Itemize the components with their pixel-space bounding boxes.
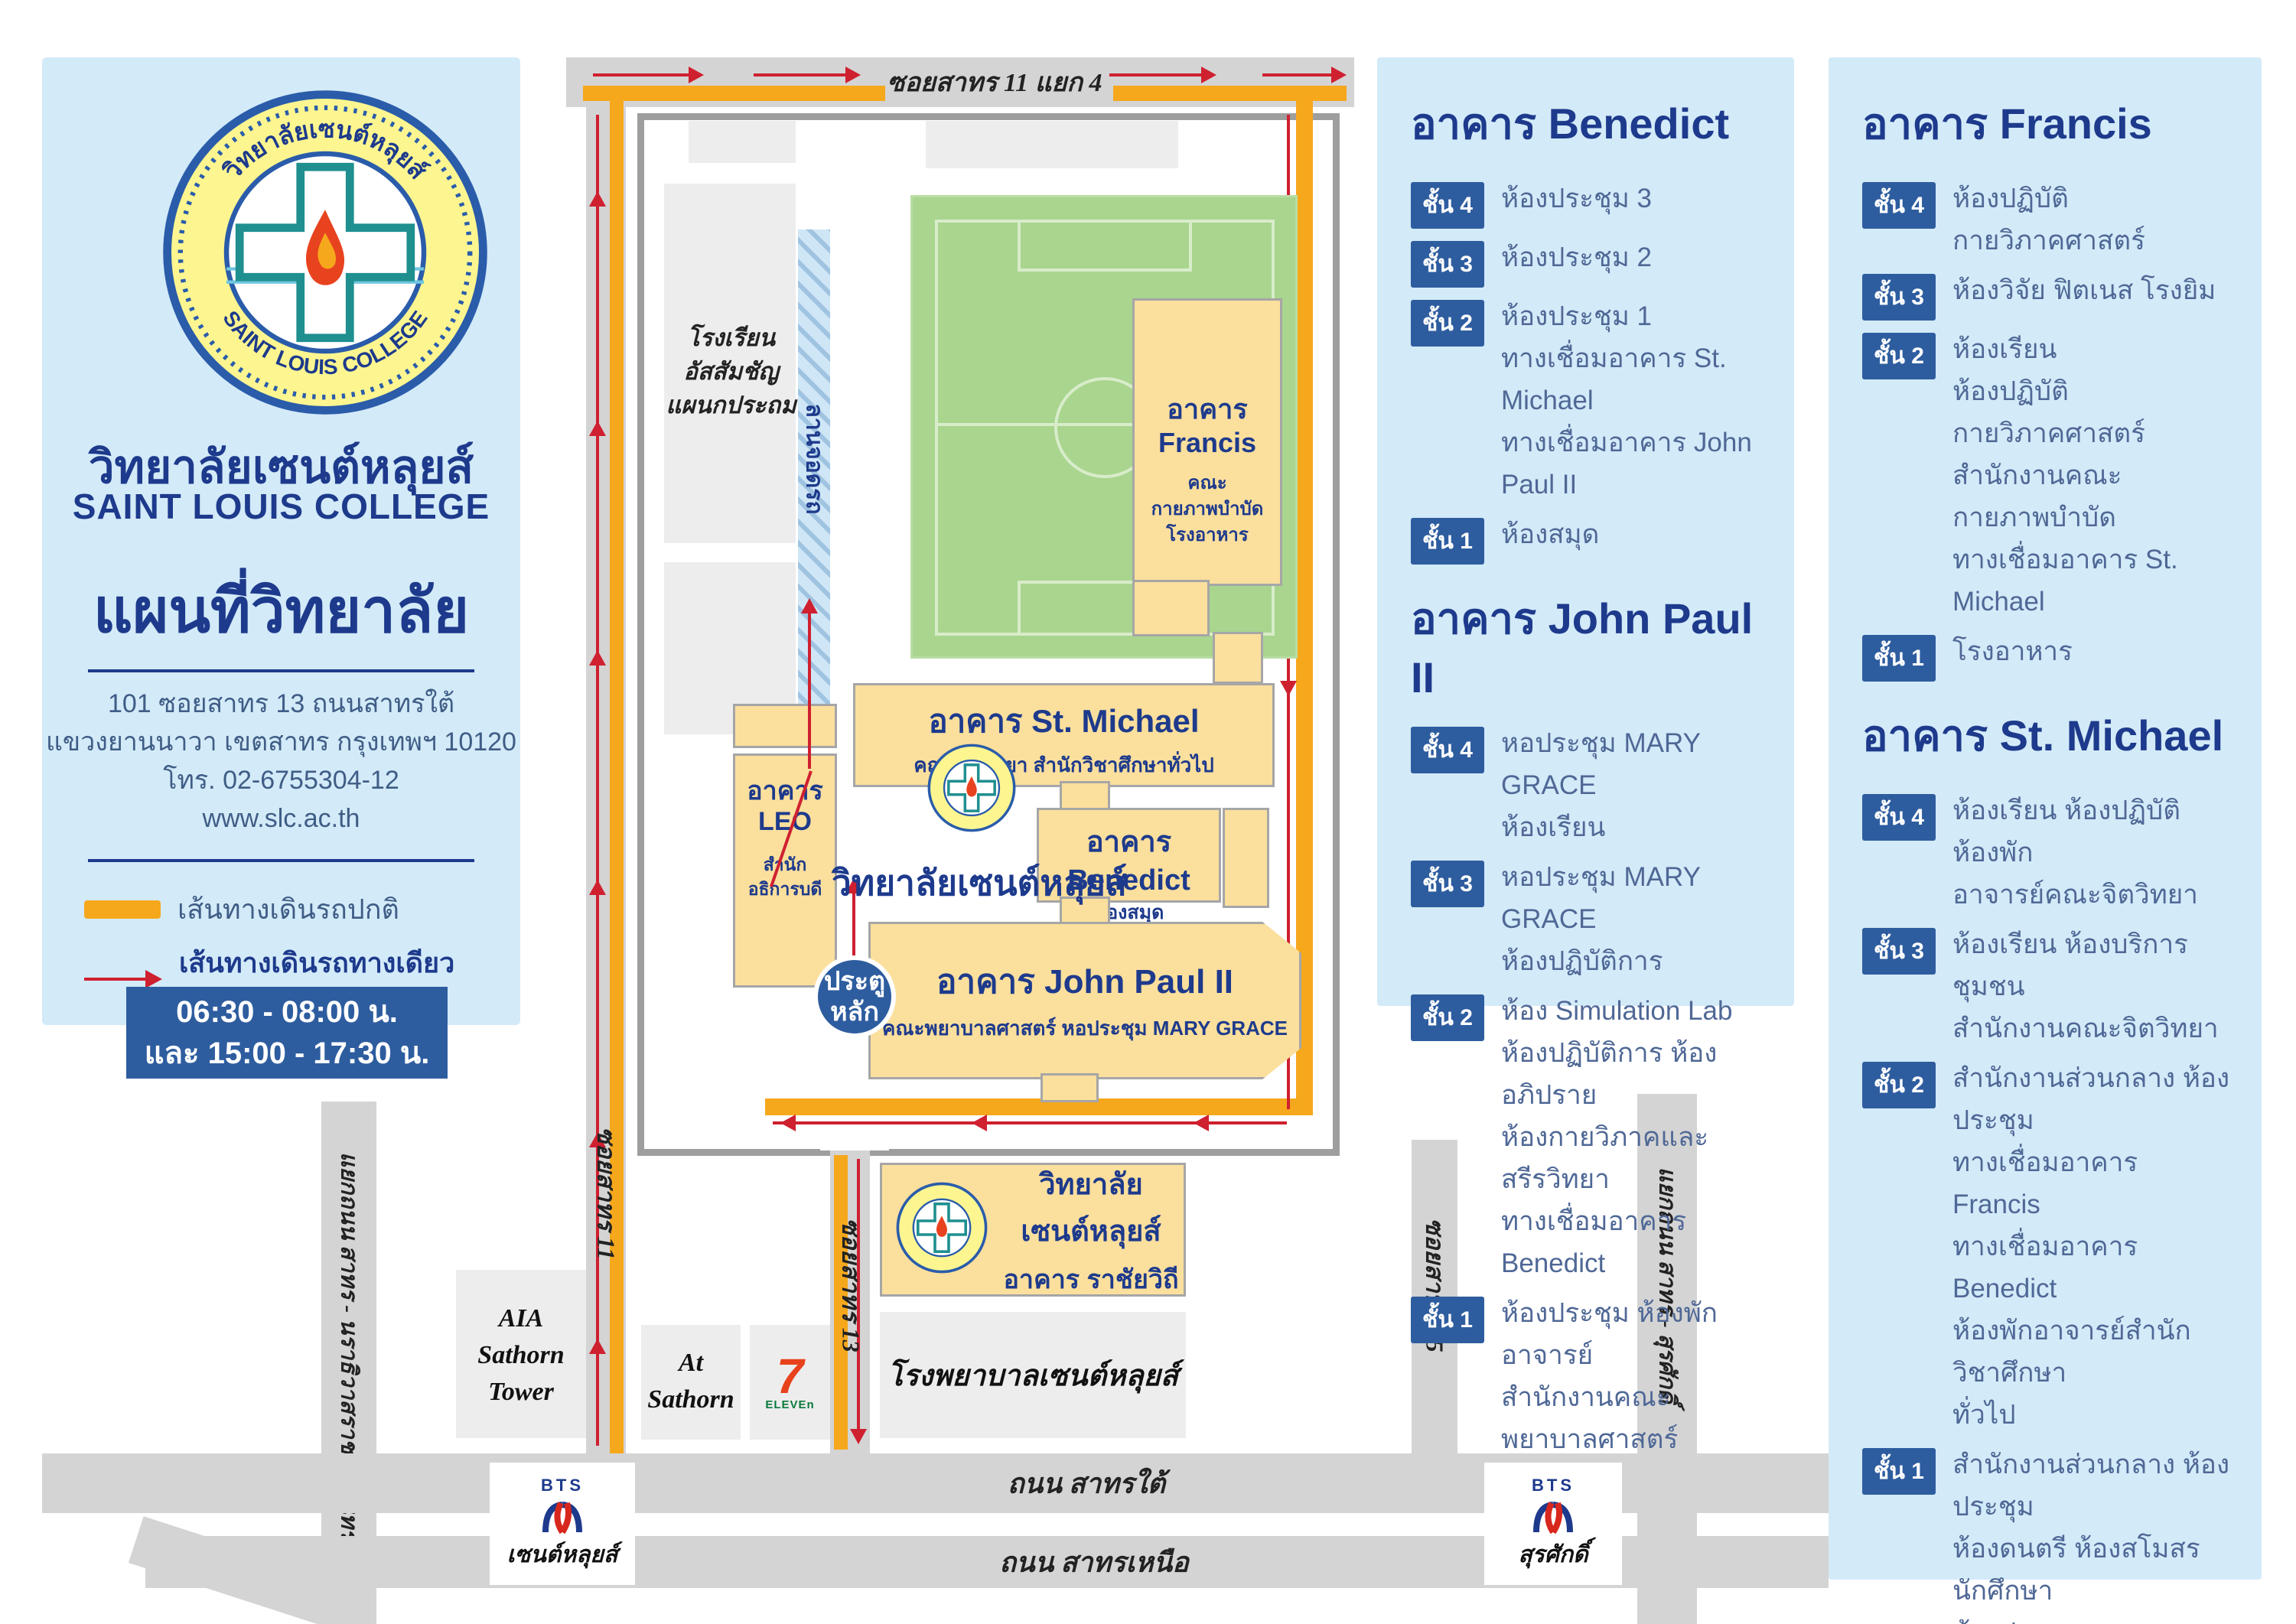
legend-normal-route: เส้นทางเดินรถปกติ <box>84 887 399 931</box>
road-label-sathorn-tai: ถนน สาทรใต้ <box>1008 1462 1165 1505</box>
one-way-arrow-up-icon <box>589 1339 606 1354</box>
floor-line: ห้องประชุม 2 <box>1501 236 1652 278</box>
directory-john-paul-floors: ชั้น 4หอประชุม MARY GRACEห้องเรียนชั้น 3… <box>1411 722 1764 1460</box>
floor-line: ห้องสมุด <box>1501 513 1599 555</box>
one-way-arrow-right-icon <box>1331 67 1347 83</box>
floor-line: หอประชุม MARY GRACE <box>1501 722 1764 806</box>
building-connector <box>1041 1073 1099 1102</box>
floor-row: ชั้น 1ห้องสมุด <box>1411 513 1764 565</box>
michael-label: อาคาร St. Michael <box>855 696 1272 747</box>
field-goal-box <box>1018 220 1192 272</box>
aia-label-line: AIA <box>456 1300 586 1337</box>
floor-line: ห้องประชุม ห้องพักอาจารย์ <box>1501 1292 1764 1376</box>
floor-line: ห้องประชุม 3 <box>1501 177 1652 220</box>
assumption-school-label: โรงเรียน อัสสัมชัญ แผนกประถม <box>656 321 806 422</box>
legend-normal-label: เส้นทางเดินรถปกติ <box>177 887 399 931</box>
school-label-line: อัสสัมชัญ <box>656 355 806 389</box>
floor-row: ชั้น 3ห้องวิจัย ฟิตเนส โรงยิม <box>1862 269 2231 321</box>
building-st-michael: อาคาร St. Michael คณะจิตวิทยา สำนักวิชาศ… <box>853 683 1275 787</box>
floor-badge: ชั้น 1 <box>1411 518 1484 565</box>
one-way-arrow-left-icon <box>972 1115 987 1131</box>
floor-badge: ชั้น 2 <box>1411 994 1484 1041</box>
francis-sub: โรงอาหาร <box>1135 522 1280 548</box>
floor-line: ทางเชื่อมอาคาร St. Michael <box>1952 539 2231 623</box>
one-way-arrow-right-icon <box>689 67 704 83</box>
main-gate-badge: ประตู หลัก <box>813 955 896 1038</box>
road-label-sathorn-nuea: ถนน สาทรเหนือ <box>999 1541 1189 1584</box>
building-block <box>1223 808 1269 908</box>
floor-badge: ชั้น 1 <box>1862 1448 1936 1495</box>
floor-line: สำนักงานส่วนกลาง ห้องประชุม <box>1952 1443 2231 1528</box>
directory-michael-floors: ชั้น 4ห้องเรียน ห้องปฏิบัติ ห้องพักอาจาร… <box>1862 789 2231 1624</box>
floor-line: ห้อง Simulation Lab <box>1501 990 1764 1032</box>
floor-row: ชั้น 3หอประชุม MARY GRACEห้องปฏิบัติการ <box>1411 856 1764 982</box>
floor-badge: ชั้น 3 <box>1862 274 1936 321</box>
floor-line: สำนักงานคณะกายภาพบำบัด <box>1952 454 2231 539</box>
francis-label: Francis <box>1135 426 1280 460</box>
floor-line: อาจารย์คณะจิตวิทยา <box>1952 874 2231 916</box>
floor-line: ห้องดนตรี ห้องสโมสรนักศึกษา <box>1952 1528 2231 1612</box>
michael-sub: คณะจิตวิทยา สำนักวิชาศึกษาทั่วไป <box>855 750 1272 781</box>
bts-logo-text: BTS <box>541 1476 584 1495</box>
floor-row: ชั้น 2ห้องเรียนห้องปฏิบัติกายวิภาคศาสตร์… <box>1862 328 2231 623</box>
gate-gap <box>820 1137 889 1150</box>
floor-line: ห้องปฏิบัติกายวิภาคศาสตร์ <box>1952 370 2231 454</box>
floor-row: ชั้น 1โรงอาหาร <box>1862 630 2231 682</box>
school-label-line: แผนกประถม <box>656 389 806 422</box>
saint-louis-hospital-block: โรงพยาบาลเซนต์หลุยส์ <box>880 1312 1186 1438</box>
floor-line: ห้องปฏิบัติกายวิภาคศาสตร์ <box>1952 177 2231 262</box>
address-line-1: 101 ซอยสาทร 13 ถนนสาทรใต้ <box>42 685 520 723</box>
one-way-arrow-up-icon <box>589 421 606 436</box>
floor-row: ชั้น 1ห้องประชุม ห้องพักอาจารย์สำนักงานค… <box>1411 1292 1764 1460</box>
floor-row: ชั้น 2สำนักงานส่วนกลาง ห้องประชุมทางเชื่… <box>1862 1057 2231 1436</box>
one-way-arrow-up-icon <box>589 650 606 666</box>
one-way-arrow-down-icon <box>850 1429 867 1444</box>
website-text: www.slc.ac.th <box>42 799 520 838</box>
bts-logo-icon <box>1529 1499 1578 1534</box>
building-john-paul: อาคาร John Paul II คณะพยาบาลศาสตร์ หอประ… <box>868 922 1301 1079</box>
college-seal-small-icon <box>896 1182 988 1277</box>
at-sathorn-label-line: Sathorn <box>641 1382 741 1418</box>
floor-line: ทางเชื่อมอาคาร St. Michael <box>1501 337 1764 421</box>
floor-line: ทางเชื่อมอาคาร John Paul II <box>1501 421 1764 506</box>
building-block <box>689 121 796 163</box>
rajavithi-sub: อาคาร ราชัยวิถี <box>998 1258 1184 1300</box>
college-name-eng: SAINT LOUIS COLLEGE <box>42 486 520 527</box>
seven-digit: 7 <box>765 1354 814 1398</box>
road-label-soi11: ซอยสาทร 11 <box>587 1127 626 1260</box>
bts-station-name: เซนต์หลุยส์ <box>507 1537 618 1573</box>
one-way-time-2: และ 15:00 - 17:30 น. <box>126 1033 448 1074</box>
floor-line: ห้องเรียน <box>1501 806 1764 848</box>
floor-line: ห้องเรียน <box>1952 328 2231 370</box>
gate-label-line: ประตู <box>824 966 885 997</box>
floor-badge: ชั้น 4 <box>1411 182 1484 229</box>
floor-row: ชั้น 4หอประชุม MARY GRACEห้องเรียน <box>1411 722 1764 848</box>
floor-badge: ชั้น 1 <box>1862 635 1936 682</box>
info-panel: วิทยาลัยเซนต์หลุยส์ SAINT LOUIS COLLEGE … <box>42 57 520 1025</box>
at-sathorn-label-line: At <box>641 1345 741 1382</box>
floor-badge: ชั้น 2 <box>1862 1062 1936 1108</box>
one-way-arrow-up-icon <box>589 880 606 895</box>
directory-title-michael: อาคาร St. Michael <box>1862 701 2231 770</box>
one-way-arrow-left-icon <box>1194 1115 1209 1131</box>
bts-saint-louis-station: BTS เซนต์หลุยส์ <box>490 1463 635 1585</box>
floor-line: ห้องประชุม 1 <box>1501 295 1764 337</box>
directory-title-francis: อาคาร Francis <box>1862 89 2231 158</box>
floor-badge: ชั้น 2 <box>1862 333 1936 379</box>
building-francis: อาคาร Francis คณะกายภาพบำบัด โรงอาหาร <box>1132 298 1282 586</box>
floor-line: สำนักงานคณะพยาบาลศาสตร์ <box>1501 1376 1764 1460</box>
one-way-times-box: 06:30 - 08:00 น. และ 15:00 - 17:30 น. <box>126 987 448 1079</box>
floor-badge: ชั้น 3 <box>1862 928 1936 975</box>
divider <box>88 669 474 672</box>
floor-line: ทางเชื่อมอาคาร Francis <box>1952 1141 2231 1225</box>
address-line-2: แขวงยานนาวา เขตสาทร กรุงเทพฯ 10120 <box>42 723 520 761</box>
hospital-label: โรงพยาบาลเซนต์หลุยส์ <box>887 1352 1178 1398</box>
francis-sub: คณะกายภาพบำบัด <box>1135 470 1280 522</box>
aia-label-line: Sathorn <box>456 1337 586 1374</box>
normal-route-swatch-icon <box>84 900 161 919</box>
floor-badge: ชั้น 2 <box>1411 300 1484 347</box>
rajavithi-label: วิทยาลัยเซนต์หลุยส์ <box>998 1160 1184 1254</box>
floor-row: ชั้น 3ห้องประชุม 2 <box>1411 236 1764 288</box>
college-center-label: วิทยาลัยเซนต์หลุยส์ <box>765 855 1194 911</box>
parking-label: ลานจอดรถ <box>796 403 832 514</box>
gate-label-line: หลัก <box>830 997 879 1027</box>
floor-line: ทั่วไป <box>1952 1394 2231 1436</box>
floor-line: โรงอาหาร <box>1952 630 2073 672</box>
floor-row: ชั้น 4ห้องปฏิบัติกายวิภาคศาสตร์ <box>1862 177 2231 262</box>
floor-line: สำนักงานส่วนกลาง ห้องประชุม <box>1952 1057 2231 1141</box>
floor-row: ชั้น 3ห้องเรียน ห้องบริการชุมชนสำนักงานค… <box>1862 923 2231 1050</box>
aia-sathorn-tower-block: AIA Sathorn Tower <box>456 1270 586 1438</box>
floor-line: ห้องปฏิบัติการ ห้องอภิปราย <box>1501 1032 1764 1116</box>
directory-title-john-paul: อาคาร John Paul II <box>1411 584 1764 702</box>
leo-label: อาคาร <box>735 776 835 806</box>
bts-logo-icon <box>538 1499 587 1534</box>
floor-line: ห้องเรียน ห้องปฏิบัติ ห้องพัก <box>1952 789 2231 874</box>
floor-row: ชั้น 4ห้องเรียน ห้องปฏิบัติ ห้องพักอาจาร… <box>1862 789 2231 916</box>
route-strip <box>765 1098 1313 1115</box>
floor-line: หอประชุม MARY GRACE <box>1501 856 1764 940</box>
map-title: แผนที่วิทยาลัย <box>42 562 520 659</box>
floor-line: ทางเชื่อมอาคาร Benedict <box>1952 1225 2231 1310</box>
college-seal-small-icon <box>927 744 1016 836</box>
floor-badge: ชั้น 3 <box>1411 241 1484 288</box>
one-way-arrow-down-icon <box>1280 681 1297 696</box>
bts-surasak-station: BTS สุรศักดิ์ <box>1484 1463 1622 1585</box>
directory-francis-floors: ชั้น 4ห้องปฏิบัติกายวิภาคศาสตร์ชั้น 3ห้อ… <box>1862 177 2231 682</box>
bts-logo-text: BTS <box>1532 1476 1575 1495</box>
seven-eleven-block: 7 ELEVEn <box>750 1325 830 1440</box>
john-paul-sub: คณะพยาบาลศาสตร์ หอประชุม MARY GRACE <box>871 1013 1299 1044</box>
leo-label: LEO <box>735 806 835 837</box>
campus-map-poster: วิทยาลัยเซนต์หลุยส์ SAINT LOUIS COLLEGE … <box>0 0 2296 1624</box>
floor-line: ห้องวิจัย ฟิตเนส โรงยิม <box>1952 269 2216 311</box>
floor-row: ชั้น 1สำนักงานส่วนกลาง ห้องประชุมห้องดนต… <box>1862 1443 2231 1624</box>
one-way-arrow-right-icon <box>1201 67 1216 83</box>
floor-line: ห้องปฐมพยาบาล <box>1952 1612 2231 1624</box>
floor-line: ห้องปฏิบัติการ <box>1501 940 1764 982</box>
floor-line: ห้องกายวิภาคและสรีรวิทยา <box>1501 1116 1764 1200</box>
one-way-arrow-up-icon <box>801 598 818 613</box>
floor-badge: ชั้น 3 <box>1411 861 1484 907</box>
floor-line: สำนักงานคณะจิตวิทยา <box>1952 1007 2231 1050</box>
one-way-arrow-right-icon <box>845 67 861 83</box>
seven-word: ELEVEn <box>765 1398 814 1411</box>
college-seal-icon: วิทยาลัยเซนต์หลุยส์ SAINT LOUIS COLLEGE <box>161 88 490 421</box>
floor-badge: ชั้น 4 <box>1862 182 1936 229</box>
floor-row: ชั้น 4ห้องประชุม 3 <box>1411 177 1764 229</box>
building-rajavithi: วิทยาลัยเซนต์หลุยส์ อาคาร ราชัยวิถี <box>880 1163 1186 1297</box>
at-sathorn-block: At Sathorn <box>641 1325 741 1440</box>
floor-row: ชั้น 2ห้อง Simulation Labห้องปฏิบัติการ … <box>1411 990 1764 1284</box>
road-label-soi11-yaek4: ซอยสาทร 11 แยก 4 <box>887 61 1102 103</box>
route-strip <box>583 86 885 101</box>
one-way-arrow-left-icon <box>780 1115 796 1131</box>
directory-panel-1: อาคาร Benedict ชั้น 4ห้องประชุม 3ชั้น 3ห… <box>1377 57 1794 1006</box>
floor-line: ห้องพักอาจารย์สำนักวิชาศึกษา <box>1952 1310 2231 1394</box>
floor-badge: ชั้น 4 <box>1411 727 1484 773</box>
road-label-soi13: ซอยสาทร 13 <box>832 1218 871 1352</box>
one-way-time-1: 06:30 - 08:00 น. <box>126 991 448 1033</box>
one-way-arrow-icon <box>84 970 162 988</box>
directory-title-benedict: อาคาร Benedict <box>1411 89 1764 158</box>
directory-benedict-floors: ชั้น 4ห้องประชุม 3ชั้น 3ห้องประชุม 2ชั้น… <box>1411 177 1764 565</box>
floor-line: ทางเชื่อมอาคาร Benedict <box>1501 1200 1764 1284</box>
floor-badge: ชั้น 1 <box>1411 1297 1484 1343</box>
floor-row: ชั้น 2ห้องประชุม 1ทางเชื่อมอาคาร St. Mic… <box>1411 295 1764 506</box>
school-label-line: โรงเรียน <box>656 321 806 355</box>
divider <box>88 859 474 862</box>
directory-panel-2: อาคาร Francis ชั้น 4ห้องปฏิบัติกายวิภาคศ… <box>1829 57 2262 1580</box>
building-block <box>733 704 837 748</box>
building-francis-step <box>1132 580 1210 636</box>
seven-eleven-logo-icon: 7 ELEVEn <box>765 1354 814 1411</box>
bts-station-name: สุรศักดิ์ <box>1518 1537 1588 1573</box>
one-way-arrow-up-icon <box>589 191 606 207</box>
floor-badge: ชั้น 4 <box>1862 794 1936 841</box>
building-connector <box>1213 632 1263 684</box>
floor-line: ห้องเรียน ห้องบริการชุมชน <box>1952 923 2231 1007</box>
francis-label: อาคาร <box>1135 392 1280 426</box>
aia-label-line: Tower <box>456 1374 586 1411</box>
route-strip <box>1113 86 1347 101</box>
building-block <box>926 121 1178 168</box>
phone-line: โทร. 02-6755304-12 <box>42 761 520 799</box>
john-paul-label: อาคาร John Paul II <box>871 955 1299 1008</box>
